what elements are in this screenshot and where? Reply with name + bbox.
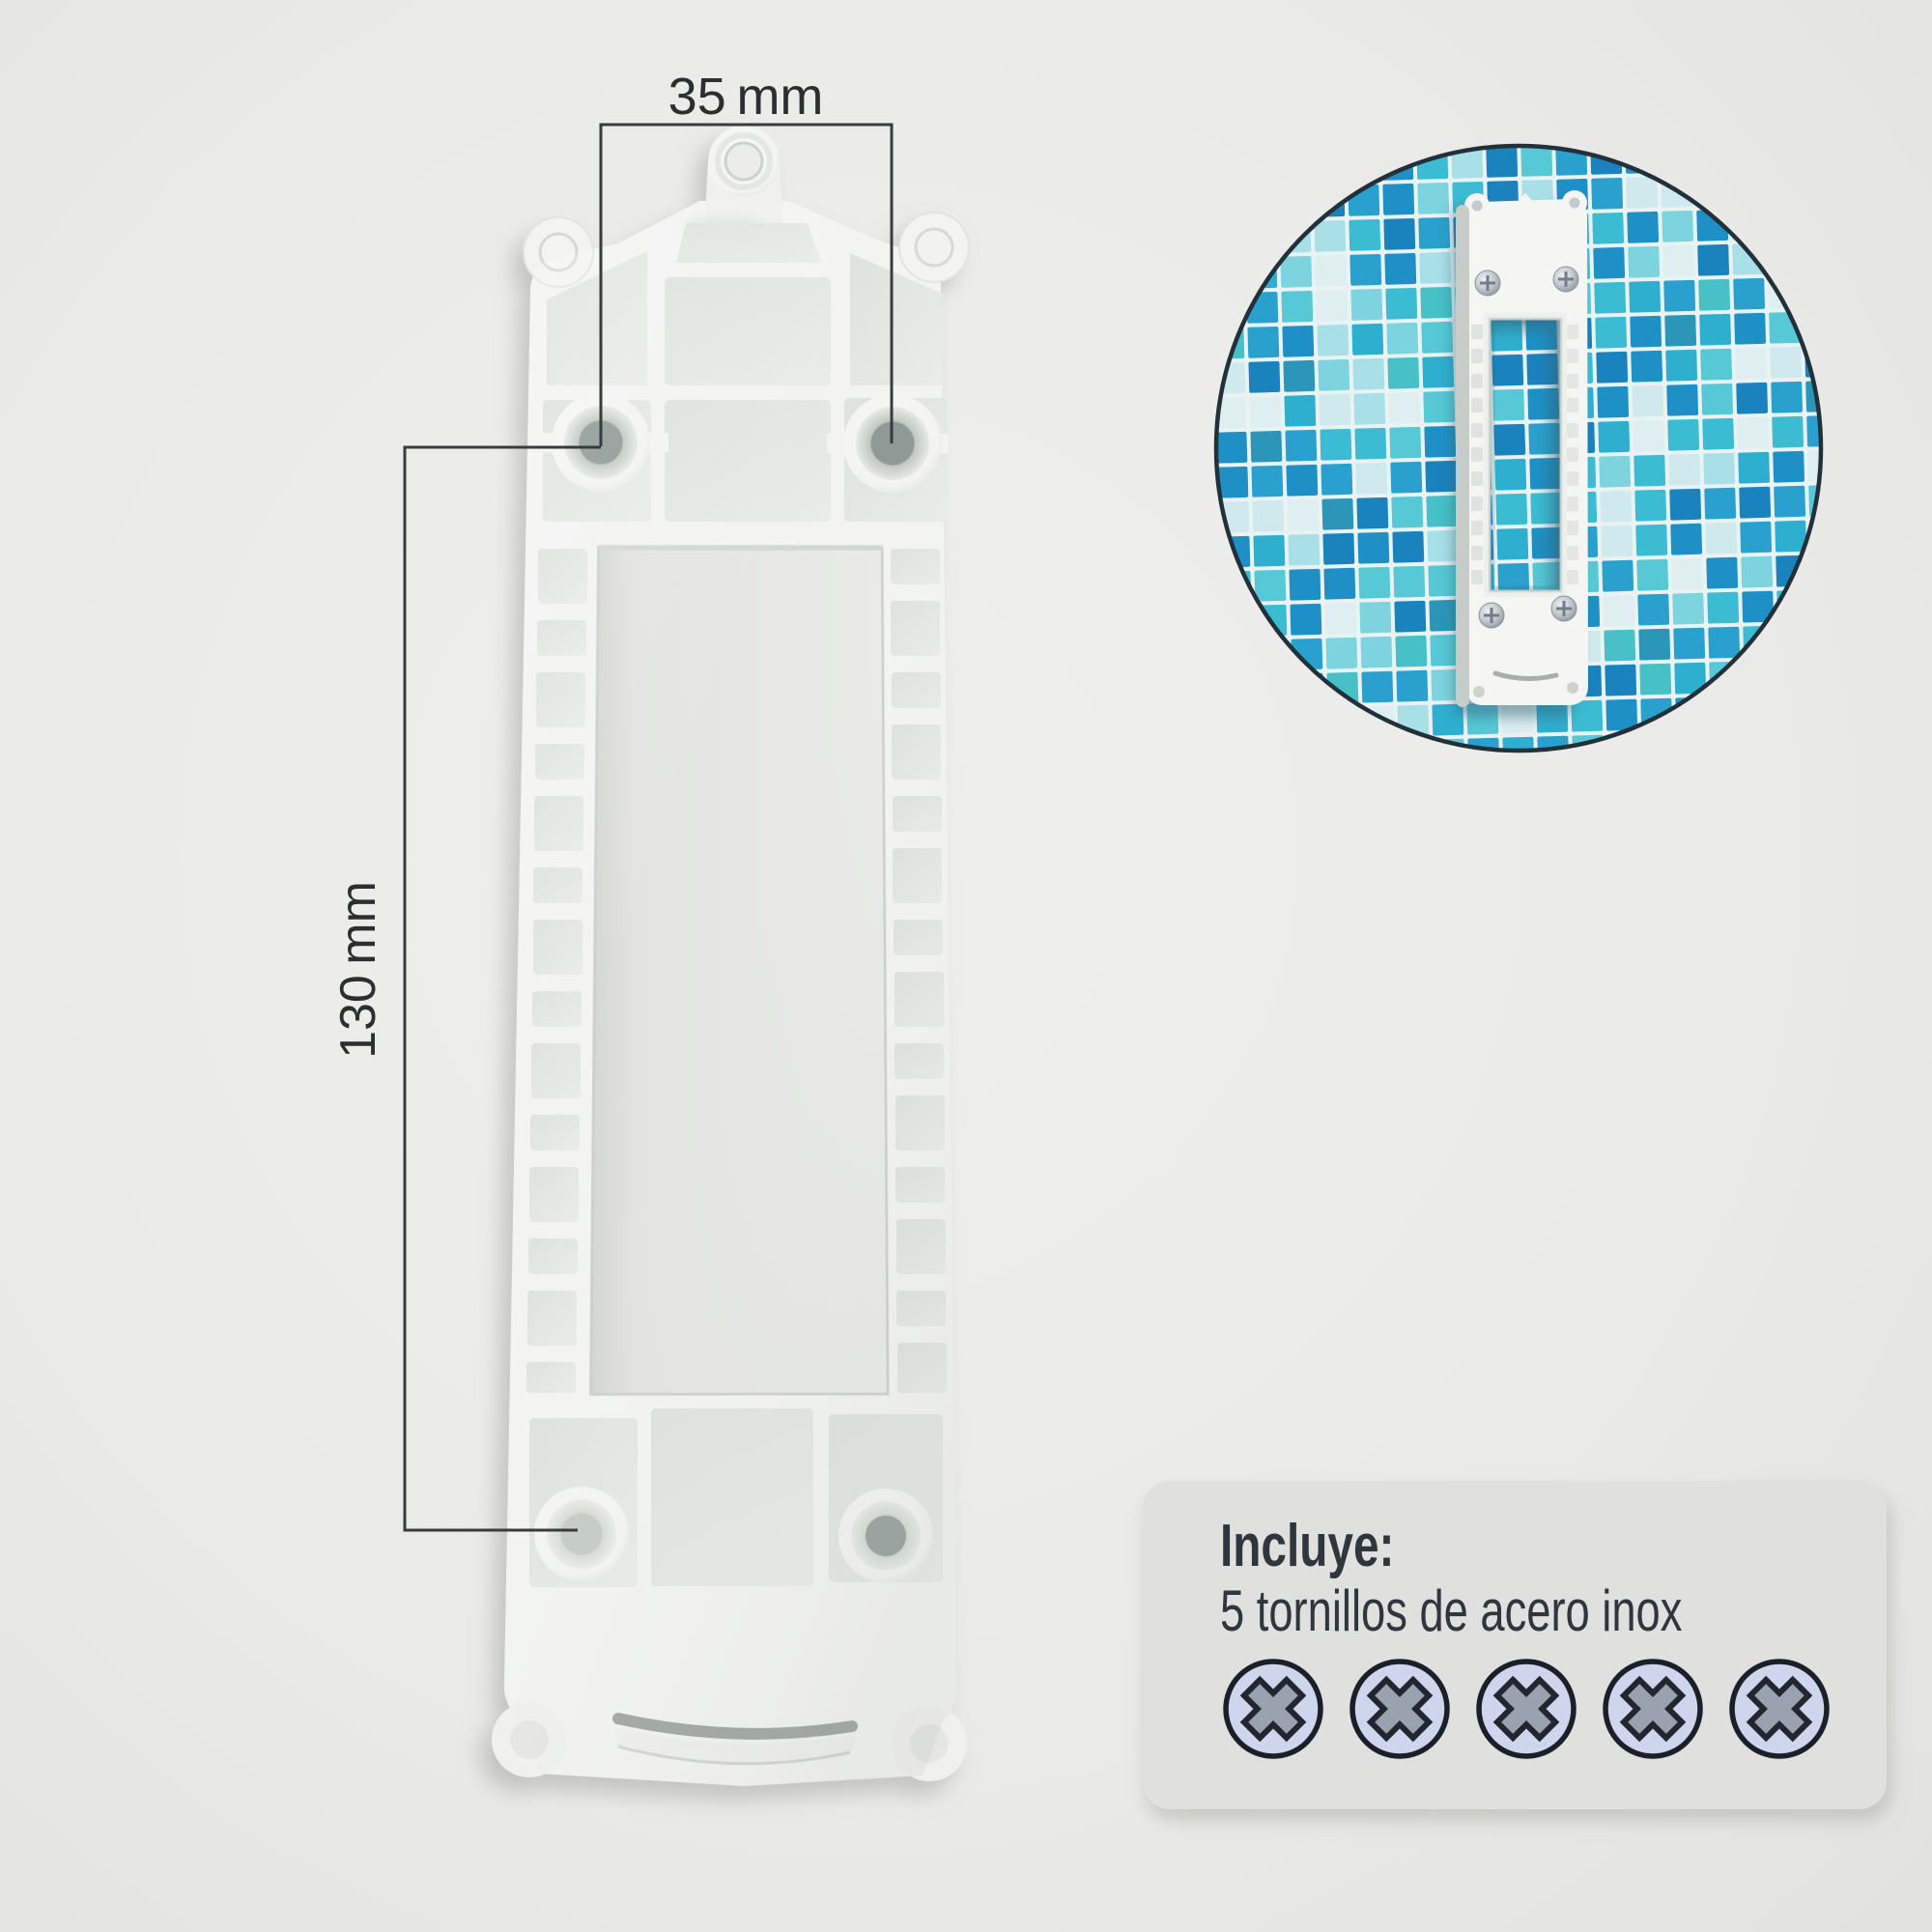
svg-text:5 tornillos de acero inox: 5 tornillos de acero inox [1220,1579,1682,1644]
svg-text:130 mm: 130 mm [330,881,386,1059]
svg-text:35 mm: 35 mm [668,68,824,126]
svg-text:Incluye:: Incluye: [1220,1512,1394,1578]
